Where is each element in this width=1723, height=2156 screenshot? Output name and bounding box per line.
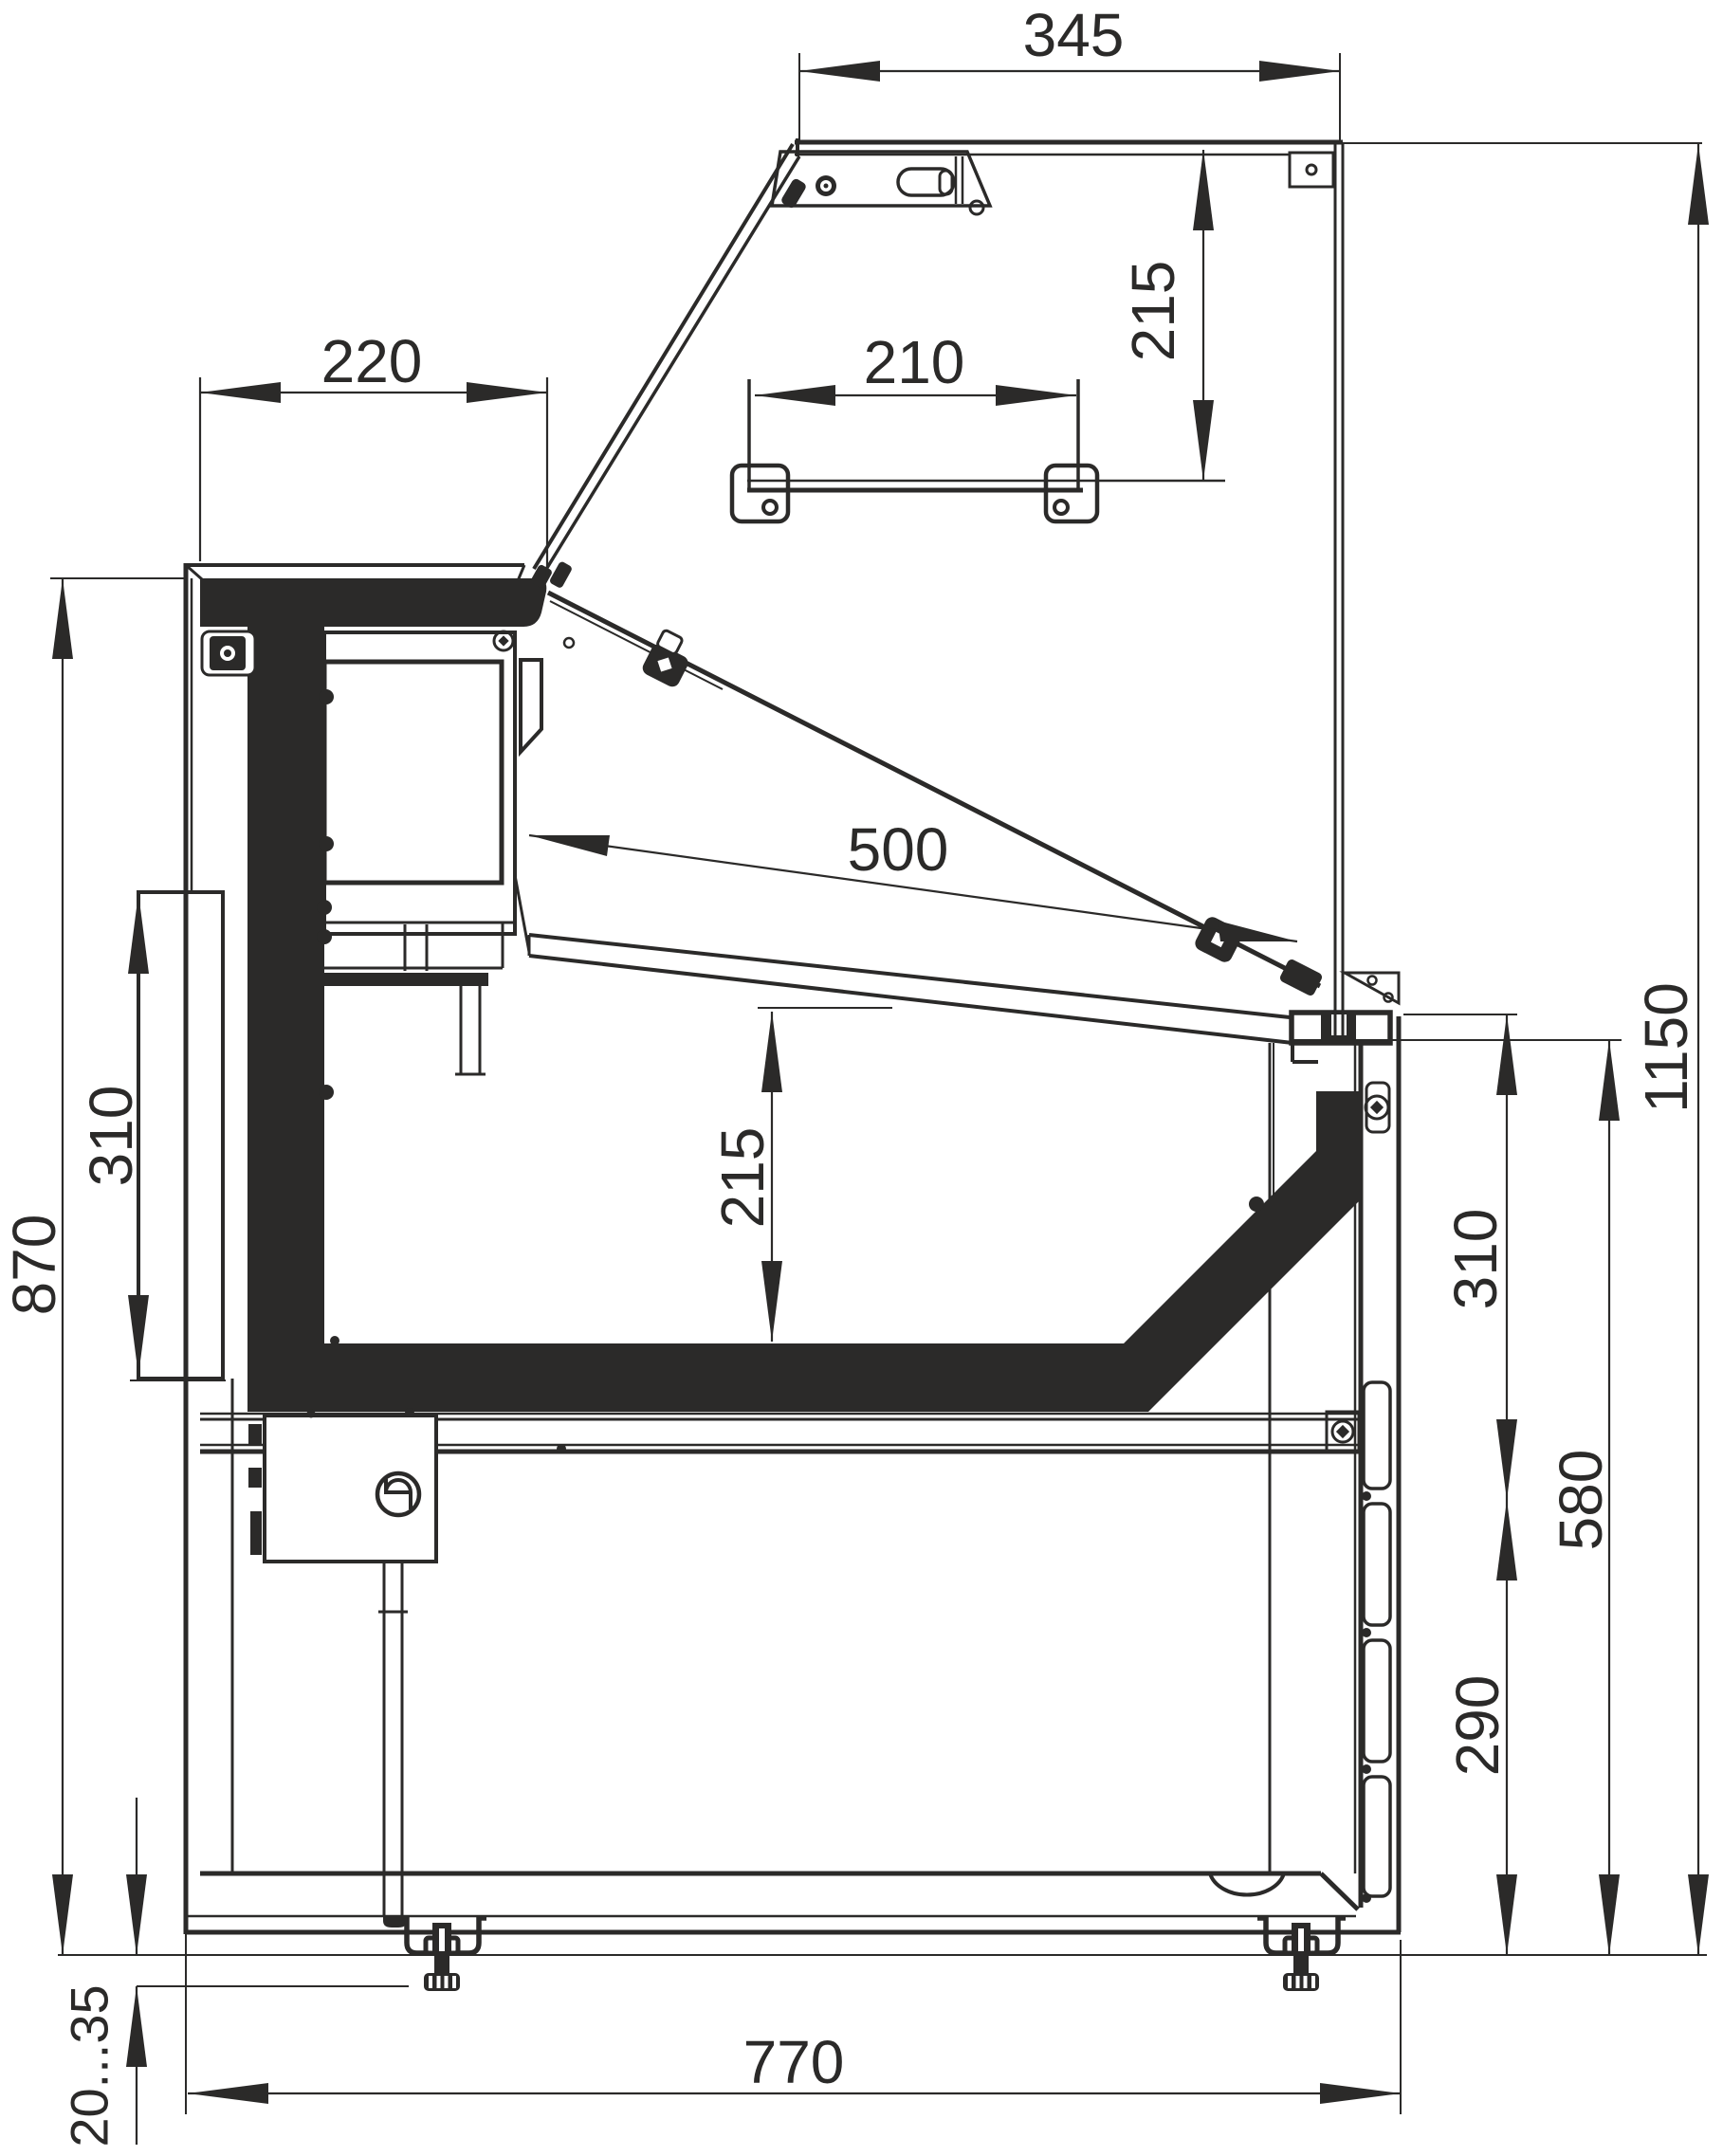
- svg-text:220: 220: [321, 327, 423, 395]
- svg-text:290: 290: [1443, 1675, 1512, 1777]
- svg-text:20...35: 20...35: [60, 1984, 119, 2147]
- svg-text:210: 210: [864, 328, 965, 396]
- svg-text:310: 310: [1441, 1209, 1510, 1310]
- svg-text:770: 770: [743, 2028, 845, 2096]
- svg-text:580: 580: [1547, 1450, 1615, 1551]
- svg-text:345: 345: [1023, 1, 1125, 69]
- svg-text:1150: 1150: [1632, 982, 1700, 1113]
- svg-text:870: 870: [0, 1215, 68, 1316]
- svg-text:215: 215: [1119, 261, 1187, 362]
- svg-text:500: 500: [848, 815, 949, 884]
- svg-text:310: 310: [77, 1086, 145, 1187]
- svg-text:215: 215: [708, 1127, 777, 1229]
